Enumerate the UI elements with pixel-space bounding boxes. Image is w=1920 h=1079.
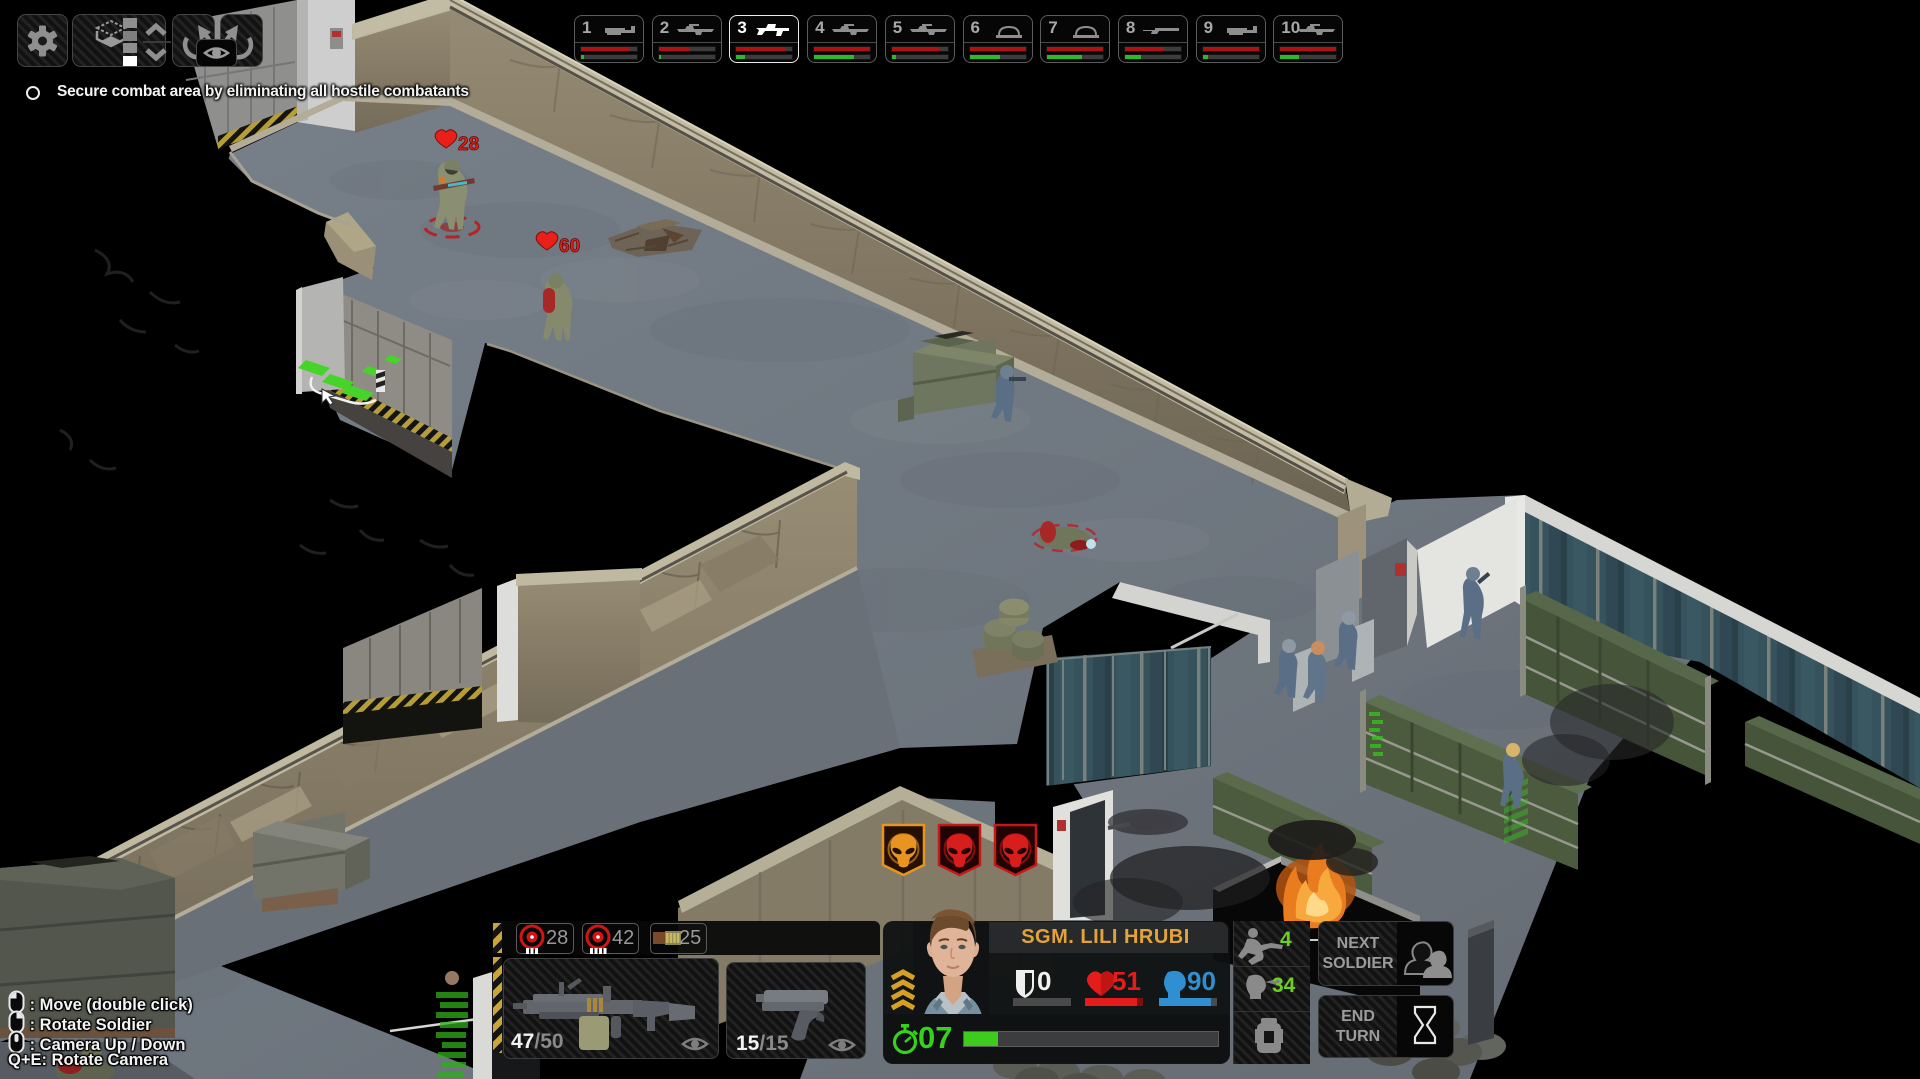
svg-text:47/50: 47/50 [511,1030,564,1053]
svg-text:15/15: 15/15 [736,1032,789,1055]
svg-text:60: 60 [559,236,580,257]
svg-text:28: 28 [458,134,479,155]
